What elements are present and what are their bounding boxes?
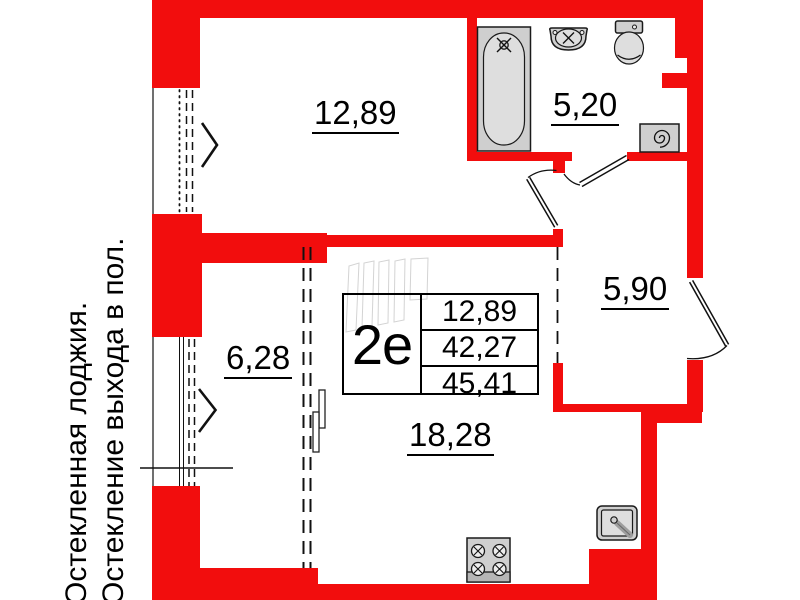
window-glazing-lower [140, 337, 233, 486]
wall-segment [553, 229, 563, 247]
washing-machine-icon [640, 124, 679, 152]
floor-plan: 12,89 5,20 5,90 6,28 18,28 2е 12,89 42,2… [0, 0, 800, 600]
wall-segment [641, 412, 702, 423]
unit-area-room: 12,89 [422, 295, 537, 331]
note-line-2: Остекление выхода в пол. [95, 185, 132, 600]
wall-segment [553, 363, 563, 412]
door-swing-icon [564, 156, 629, 187]
room-label-bedroom: 12,89 [312, 95, 399, 134]
wall-segment [687, 360, 703, 412]
room-label-kitchen-living: 18,28 [407, 417, 494, 456]
window-glazing-upper [153, 88, 217, 214]
wall-segment [467, 18, 477, 161]
wall-segment [589, 549, 641, 600]
wall-segment [152, 0, 200, 88]
wall-segment [327, 235, 553, 247]
entrance-door-swing-icon [687, 280, 729, 358]
unit-label: 2е [344, 295, 422, 393]
note-line-1: Остекленная лоджия. [58, 185, 95, 600]
room-label-bathroom: 5,20 [551, 87, 619, 126]
faucet-icon [497, 38, 511, 52]
window-chevron-icon [202, 123, 217, 167]
wall-segment [152, 214, 202, 337]
unit-area-total: 45,41 [422, 367, 537, 401]
wall-segment [200, 568, 318, 600]
sliding-door-handle [313, 412, 319, 452]
sliding-door-handle [319, 390, 325, 428]
wall-segment [152, 486, 200, 600]
wall-segment [641, 412, 657, 600]
wall-segment [627, 152, 703, 161]
unit-info-table: 2е 12,89 42,27 45,41 [342, 293, 539, 395]
unit-areas: 12,89 42,27 45,41 [422, 295, 537, 393]
room-label-loggia: 6,28 [224, 340, 292, 379]
room-label-hallway: 5,90 [601, 271, 669, 310]
door-swing-icon [527, 170, 558, 227]
kitchen-sink-icon [597, 506, 637, 540]
bathtub-icon [478, 27, 531, 151]
wall-segment [553, 161, 565, 173]
stove-icon [467, 538, 510, 582]
wall-segment [553, 404, 703, 412]
toilet-icon [615, 21, 644, 64]
bath-sink-icon [550, 28, 588, 50]
wall-segment [675, 18, 688, 58]
wall-segment [152, 0, 703, 18]
wall-segment [687, 0, 703, 278]
balcony-partition-dashed [304, 247, 326, 568]
wall-segment [662, 73, 688, 88]
wall-segment [202, 233, 327, 263]
window-chevron-icon [199, 389, 216, 432]
unit-area-living: 42,27 [422, 331, 537, 367]
wall-segment [477, 152, 572, 161]
note-vertical-text: Остекленная лоджия. Остекление выхода в … [58, 185, 132, 600]
